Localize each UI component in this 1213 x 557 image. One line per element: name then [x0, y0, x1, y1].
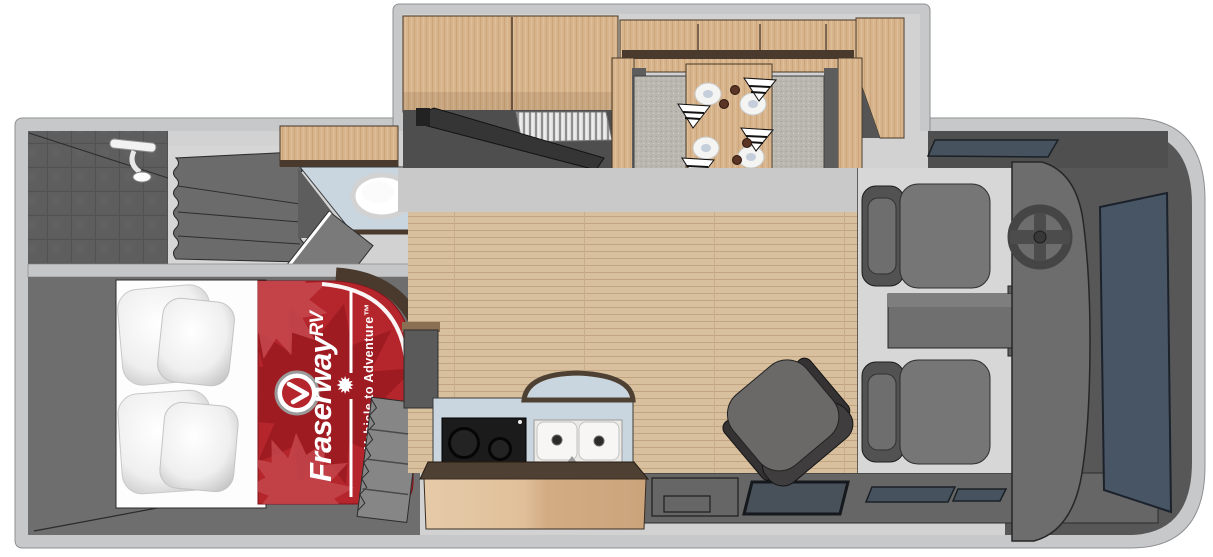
plate [693, 137, 719, 159]
counter-side-wall [404, 330, 438, 408]
burner [450, 429, 479, 458]
two-burner-cooktop [442, 418, 526, 462]
cup [720, 100, 729, 109]
cup [731, 86, 740, 95]
seat-back-pad [868, 374, 896, 450]
seat-cushion [900, 184, 990, 288]
windshield [1100, 193, 1171, 512]
side-window [928, 140, 1058, 157]
plate [695, 83, 721, 105]
dinette-groove [622, 50, 854, 59]
bedroom: FraserwayRV Your Vehicle to Adventure™ [28, 231, 439, 557]
galley-gray-strip [398, 168, 905, 212]
double-sink [534, 420, 622, 464]
seat-back-pad [868, 198, 896, 274]
sink-highlight [362, 181, 394, 203]
rv-floor-plan: FraserwayRV Your Vehicle to Adventure™ [0, 0, 1213, 557]
vanity-cabinet-trim [280, 160, 398, 167]
kitchen-overhead [403, 16, 618, 170]
plate [738, 146, 764, 168]
side-window [953, 489, 1006, 501]
cabinet-face [424, 479, 646, 529]
rv-floor-plan-canvas: FraserwayRV Your Vehicle to Adventure™ [0, 0, 1213, 557]
burner [490, 439, 511, 460]
pillow [158, 401, 239, 493]
center-console [888, 286, 1030, 356]
drain [552, 435, 562, 445]
cooktop-knob [518, 420, 522, 424]
cup [743, 139, 752, 148]
shower-curtain [174, 152, 305, 262]
cup [733, 156, 742, 165]
steering-wheel [1010, 209, 1070, 265]
side-window [866, 487, 955, 502]
pillow [156, 296, 236, 387]
counter-front-edge [420, 462, 648, 479]
console-top [888, 294, 1012, 307]
seat-cushion [900, 360, 990, 464]
tv-bracket-hinge [416, 108, 430, 126]
drain [594, 436, 604, 446]
door-window [744, 482, 848, 514]
passenger-seat [862, 184, 990, 288]
driver-seat [862, 360, 990, 464]
